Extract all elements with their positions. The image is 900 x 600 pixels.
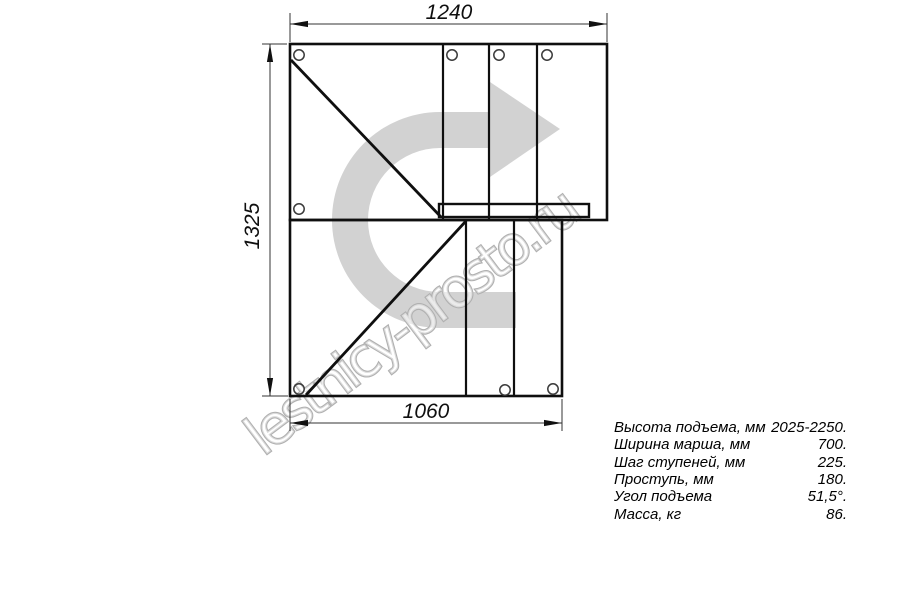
dim-label-left: 1325 [241,202,264,249]
stair-drawing-page: lestnicy-prosto.ru [0,0,900,600]
spec-row: Высота подъема, мм 2025-2250. [614,419,847,436]
dim-label-top: 1240 [426,1,473,24]
spec-label: Проступь, мм [614,471,714,488]
spec-row: Проступь, мм 180. [614,471,847,488]
mounting-hole-circle [500,385,510,395]
dim-arrow-up-icon [267,44,273,62]
spec-value: 51,5°. [808,488,847,505]
spec-value: 225. [818,454,847,471]
mounting-hole-circle [294,50,304,60]
dim-arrow-right-icon [544,420,562,426]
spec-label: Ширина марша, мм [614,436,750,453]
spec-value: 86. [826,506,847,523]
mounting-hole-circle [542,50,552,60]
spec-label: Высота подъема, мм [614,419,766,436]
spec-value: 180. [818,471,847,488]
spec-label: Угол подъема [614,488,712,505]
spec-table: Высота подъема, мм 2025-2250. Ширина мар… [614,419,847,523]
spec-row: Ширина марша, мм 700. [614,436,847,453]
mounting-hole-circle [447,50,457,60]
dim-arrow-left-icon [290,21,308,27]
dim-label-bottom: 1060 [403,400,450,423]
spec-label: Масса, кг [614,506,681,523]
spec-value: 700. [818,436,847,453]
dim-arrow-right-icon [589,21,607,27]
spec-row: Шаг ступеней, мм 225. [614,454,847,471]
spec-row: Масса, кг 86. [614,506,847,523]
spec-label: Шаг ступеней, мм [614,454,745,471]
mounting-hole-circle [494,50,504,60]
spec-row: Угол подъема 51,5°. [614,488,847,505]
mounting-hole-circle [548,384,558,394]
spec-value: 2025-2250. [771,419,847,436]
mounting-hole-circle [294,204,304,214]
